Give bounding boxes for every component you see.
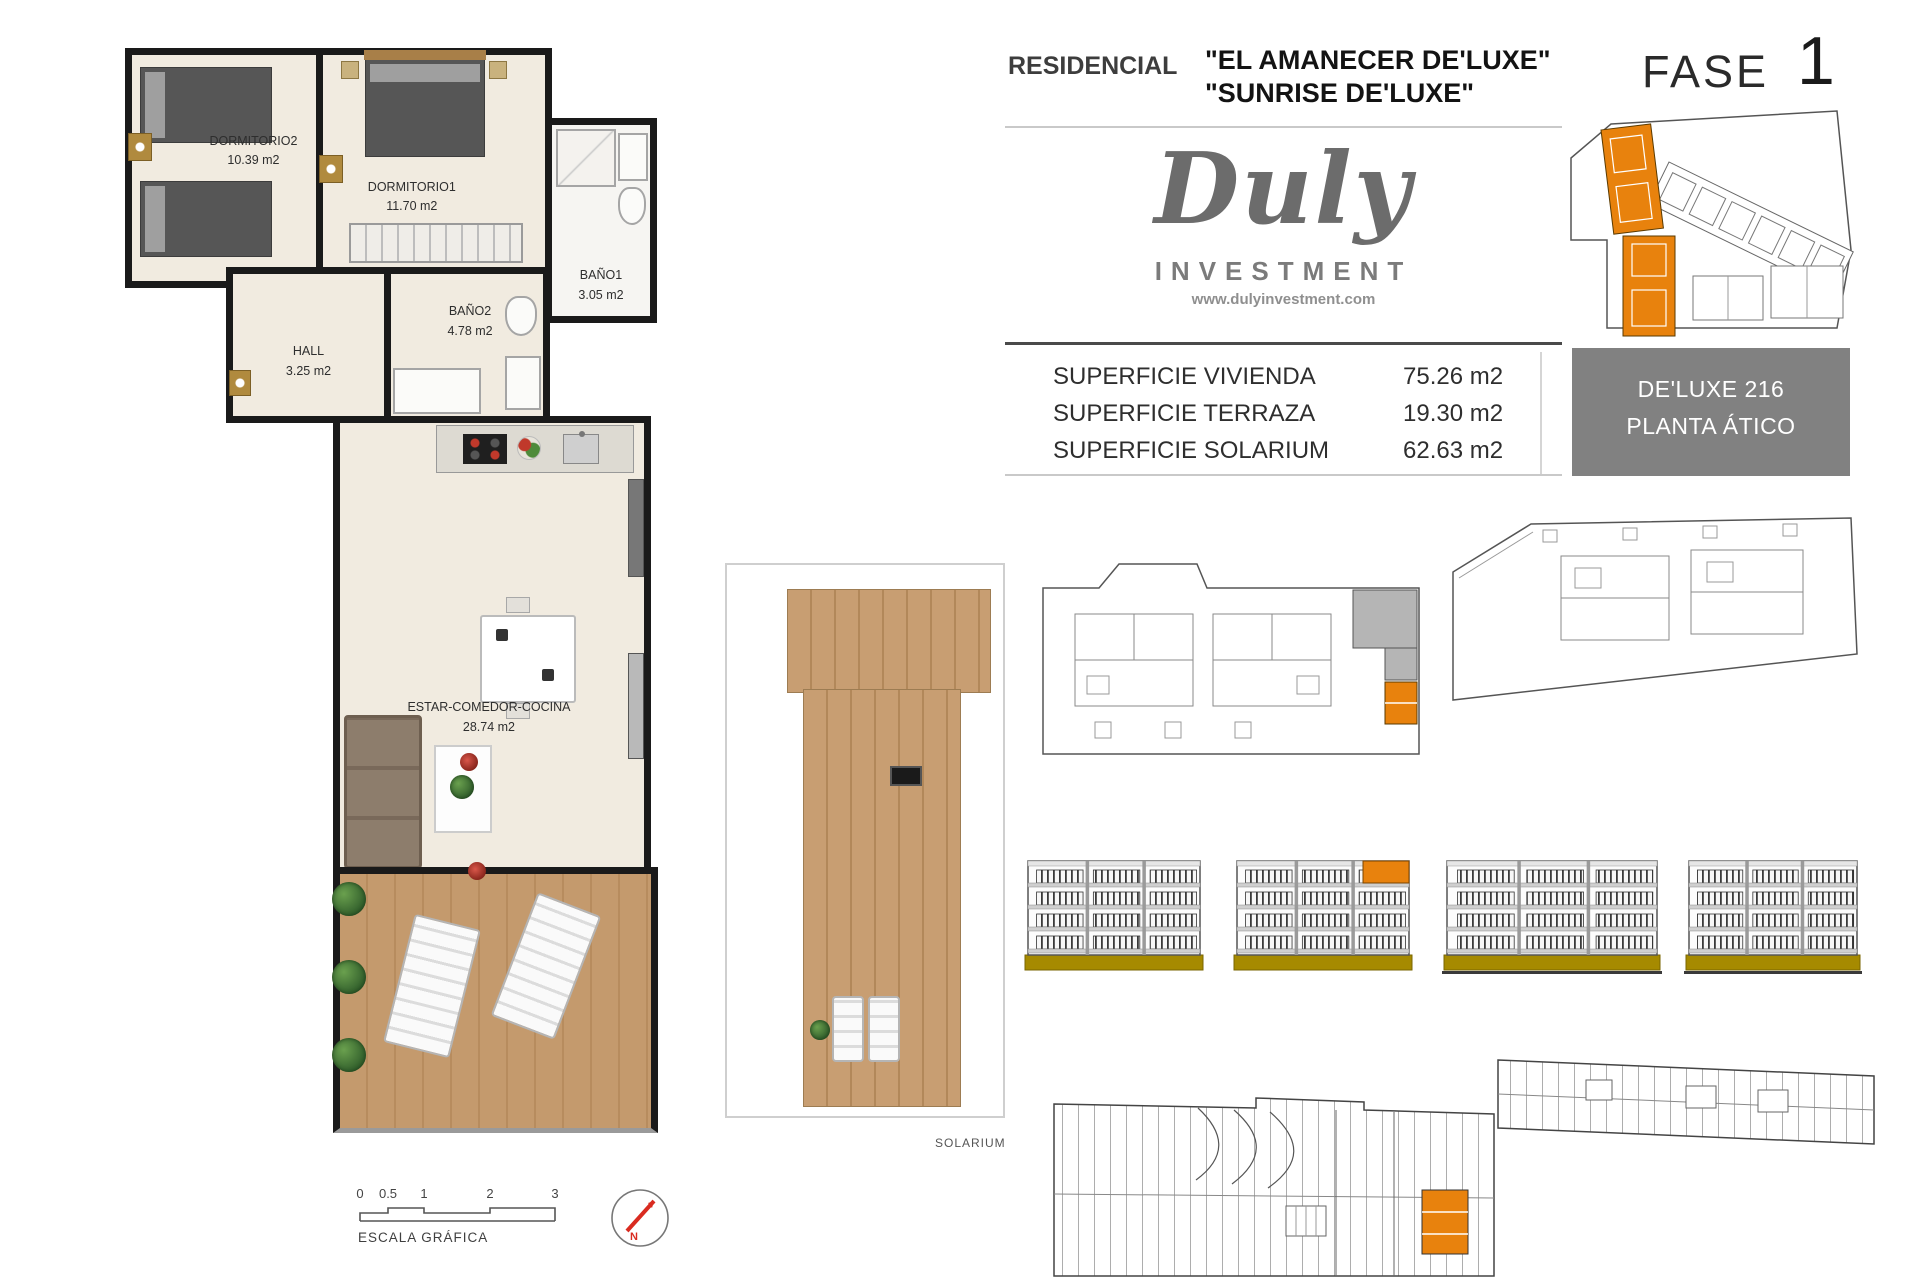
residencial-name-1: "EL AMANECER DE'LUXE" [1205,44,1551,77]
bathtub [393,368,481,414]
nightstand [489,61,507,79]
scale-tick: 2 [486,1186,493,1201]
room-label-bano1: BAÑO1 3.05 m2 [578,266,623,305]
orange-unit [1422,1190,1468,1254]
room-label-hall: HALL 3.25 m2 [286,342,331,381]
plant [332,882,366,916]
scale-caption: ESCALA GRÁFICA [358,1230,488,1245]
nightstand [341,61,359,79]
divider [1540,352,1542,474]
surface-table: SUPERFICIE VIVIENDA 75.26 m2 SUPERFICIE … [1005,358,1540,469]
dining-table [480,615,576,703]
wall-light [229,370,251,396]
plant [332,1038,366,1072]
surface-label: SUPERFICIE SOLARIUM [1005,437,1403,465]
surface-label: SUPERFICIE TERRAZA [1005,400,1403,428]
sun-lounger [383,914,481,1059]
surface-row: SUPERFICIE TERRAZA 19.30 m2 [1005,395,1540,432]
toilet [618,187,646,225]
shower [556,129,616,187]
sun-lounger [491,892,602,1040]
duly-subtitle: INVESTMENT [1005,256,1562,287]
scale-tick: 0 [356,1186,363,1201]
fase-number: 1 [1797,22,1835,100]
scale-tick: 1 [420,1186,427,1201]
sun-lounger [832,996,864,1062]
bed [365,59,485,157]
red-flower-pot [460,753,478,771]
unit-floor: PLANTA ÁTICO [1572,413,1850,440]
floor-key-plan-b [1443,508,1865,726]
building-elevation-2 [1232,853,1414,977]
sofa [344,715,422,869]
solarium-plan [725,563,1005,1118]
surface-value: 62.63 m2 [1403,437,1503,465]
residencial-label: RESIDENCIAL [1008,52,1177,81]
building-elevation-3 [1442,853,1662,977]
room-estar-comedor-cocina: ESTAR-COMEDOR-COCINA 28.74 m2 [333,416,651,874]
room-dormitorio1: DORMITORIO1 11.70 m2 [316,48,552,274]
building-elevation-4 [1684,853,1862,977]
sun-lounger [868,996,900,1062]
wardrobe [349,223,523,263]
surface-value: 19.30 m2 [1403,400,1503,428]
site-plan-diagram [1565,108,1865,340]
compass: N [608,1186,672,1250]
duly-website: www.dulyinvestment.com [1005,291,1562,308]
stove [463,434,507,464]
duly-logo: Duly INVESTMENT www.dulyinvestment.com [1005,130,1562,308]
building-elevation-1 [1023,853,1205,977]
divider [1005,126,1562,128]
plan-sheet: DORMITORIO2 10.39 m2 DORMITORIO1 11.70 m… [0,0,1920,1280]
unit-box: DE'LUXE 216 PLANTA ÁTICO [1572,348,1850,476]
north-label: N [630,1231,638,1243]
room-label-bano2: BAÑO2 4.78 m2 [447,302,492,341]
room-dormitorio2: DORMITORIO2 10.39 m2 [125,48,323,288]
kitchen-sink [563,434,599,464]
fridge-column [628,479,644,577]
residencial-names: "EL AMANECER DE'LUXE" "SUNRISE DE'LUXE" [1205,44,1551,110]
scale-tick: 0.5 [379,1186,397,1201]
solarium-deck-upper [787,589,991,693]
unit-name: DE'LUXE 216 [1572,376,1850,403]
kitchen-counter [436,425,634,473]
fase-label: FASE [1642,46,1769,98]
surface-row: SUPERFICIE SOLARIUM 62.63 m2 [1005,432,1540,469]
sink-basin [505,356,541,410]
sink-basin [618,133,648,181]
gray-unit [1353,590,1417,648]
red-flower-pot [468,862,486,880]
divider [1005,474,1562,476]
solarium-label: SOLARIUM [935,1136,1006,1150]
chair [506,597,530,613]
surface-label: SUPERFICIE VIVIENDA [1005,363,1403,391]
fruit-bowl [517,436,541,460]
highlighted-unit-lower [1623,236,1675,336]
rooflight [890,766,922,786]
scale-bar-graphic [358,1204,562,1224]
wall-light [128,133,152,161]
surface-value: 75.26 m2 [1403,363,1503,391]
room-label-dormitorio2: DORMITORIO2 10.39 m2 [209,132,297,171]
room-label-estar: ESTAR-COMEDOR-COCINA 28.74 m2 [407,698,570,737]
tv-bench [628,653,644,759]
wall-light [319,155,343,183]
divider [1005,342,1562,345]
plant [332,960,366,994]
toilet [505,296,537,336]
plant [810,1020,830,1040]
room-label-dormitorio1: DORMITORIO1 11.70 m2 [368,178,456,217]
overall-floor-plan [1046,1046,1880,1280]
floor-key-plan-a [1035,552,1430,764]
room-bano2: BAÑO2 4.78 m2 [384,267,550,423]
solarium-deck-lower [803,689,961,1107]
scale-bar: 0 0.5 1 2 3 ESCALA GRÁFICA [358,1186,578,1256]
terrace [333,867,658,1133]
duly-brand-text: Duly [1005,130,1562,250]
surface-row: SUPERFICIE VIVIENDA 75.26 m2 [1005,358,1540,395]
room-bano1: BAÑO1 3.05 m2 [545,118,657,323]
room-hall: HALL 3.25 m2 [226,267,391,423]
bed [140,181,272,257]
residencial-name-2: "SUNRISE DE'LUXE" [1205,77,1551,110]
scale-tick: 3 [551,1186,558,1201]
